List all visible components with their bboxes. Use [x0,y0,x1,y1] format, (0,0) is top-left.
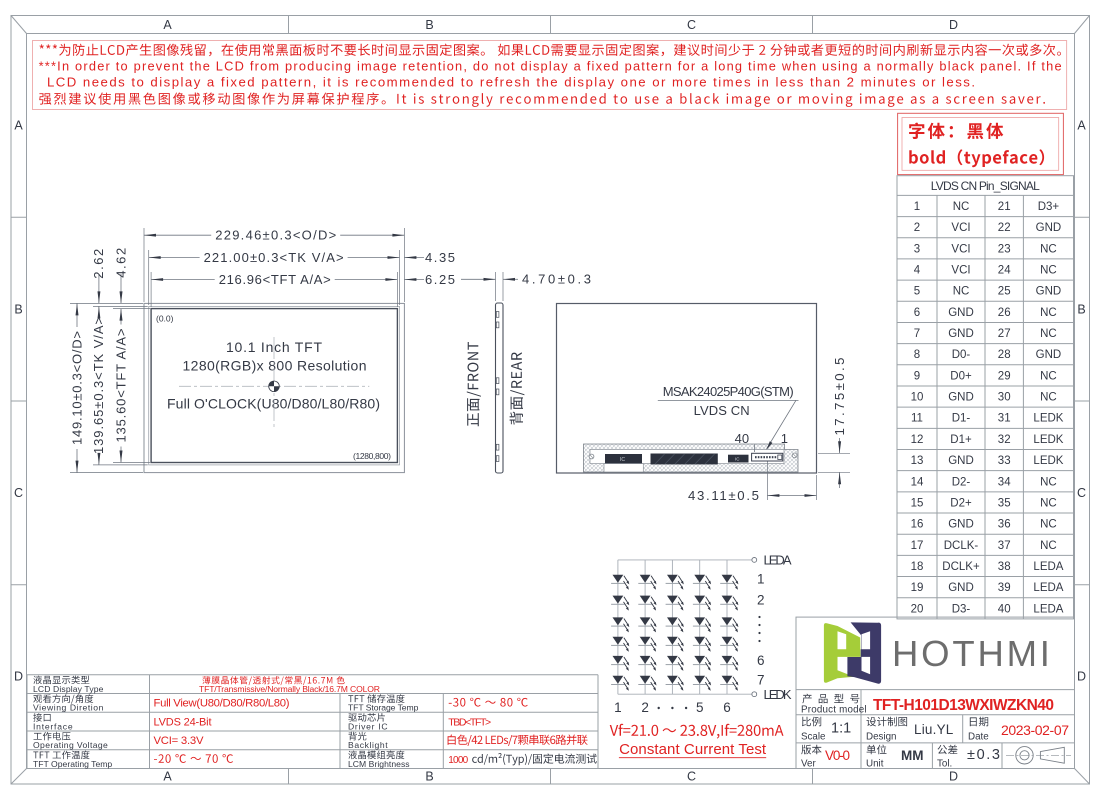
svg-text:NC: NC [1040,370,1057,382]
svg-text:GND: GND [948,582,974,594]
svg-text:A: A [163,770,172,784]
svg-text:Interface: Interface [33,721,73,731]
svg-text:GND: GND [948,328,974,340]
svg-text:1: 1 [914,201,920,213]
svg-text:D0+: D0+ [950,370,972,382]
svg-text:LEDK: LEDK [1033,413,1063,425]
svg-text:D2+: D2+ [950,497,972,509]
svg-text:Operating Voltage: Operating Voltage [33,740,108,750]
svg-text:1000: 1000 [448,755,468,766]
svg-text:A: A [1077,119,1086,133]
svg-text:B: B [425,770,433,784]
svg-text:D2-: D2- [952,476,971,488]
svg-text:D: D [14,670,23,684]
svg-text:22: 22 [998,222,1011,234]
svg-text:1: 1 [781,431,788,446]
svg-text:216.96<TFT A/A>: 216.96<TFT A/A> [219,272,331,287]
svg-text:40: 40 [998,603,1011,615]
svg-text:26: 26 [998,307,1011,319]
svg-text:VCI: VCI [951,243,970,255]
svg-text:LEDK: LEDK [1033,455,1063,467]
svg-text:C: C [14,486,23,500]
svg-text:23: 23 [998,243,1011,255]
svg-text:2023-02-07: 2023-02-07 [1001,722,1069,738]
svg-text:18: 18 [911,561,924,573]
svg-text:Driver IC: Driver IC [348,721,388,731]
svg-text:4.35: 4.35 [425,250,455,265]
svg-text:1280(RGB)x 800 Resolution: 1280(RGB)x 800 Resolution [183,357,367,373]
svg-text:LEDA: LEDA [764,553,792,568]
svg-text:VCI: VCI [951,265,970,277]
svg-text:139.65±0.3<TK V/A>: 139.65±0.3<TK V/A> [91,317,106,454]
svg-text:NC: NC [1040,265,1057,277]
svg-text:20: 20 [911,603,924,615]
svg-text:32: 32 [998,434,1011,446]
svg-text:IC: IC [735,457,740,462]
svg-text:40: 40 [735,431,749,446]
svg-text:MSAK24025P40G(STM): MSAK24025P40G(STM) [663,384,794,399]
svg-text:Scale: Scale [801,732,826,743]
svg-text:6: 6 [723,700,731,715]
svg-text:LEDA: LEDA [1033,582,1063,594]
svg-text:Design: Design [866,732,897,743]
svg-text:TFT/Transmissive/Normally Blac: TFT/Transmissive/Normally Black/16.7M CO… [199,684,380,694]
svg-text:25: 25 [998,286,1011,298]
svg-text:GND: GND [1036,222,1062,234]
svg-text:9: 9 [914,370,920,382]
svg-text:43.11±0.5: 43.11±0.5 [688,488,759,503]
svg-text:19: 19 [911,582,924,594]
svg-text:NC: NC [953,286,970,298]
svg-text:Full O'CLOCK(U80/D80/L80/R80): Full O'CLOCK(U80/D80/L80/R80) [167,395,380,411]
svg-text:12: 12 [911,434,924,446]
svg-text:NC: NC [1040,243,1057,255]
svg-text:7: 7 [914,328,920,340]
svg-text:6: 6 [914,307,920,319]
svg-text:Product model: Product model [801,705,867,716]
svg-text:Unit: Unit [866,759,884,770]
svg-text:IC: IC [620,457,625,463]
svg-text:***In order to prevent the LCD: ***In order to prevent the LCD from prod… [39,59,1062,74]
svg-text:VCI= 3.3V: VCI= 3.3V [154,735,204,747]
svg-text:2.62: 2.62 [91,249,106,279]
svg-text:TFT Operating Temp: TFT Operating Temp [33,759,112,769]
svg-text:TFT Storage Temp: TFT Storage Temp [348,703,419,713]
svg-text:VCI: VCI [951,222,970,234]
svg-text:229.46±0.3<O/D>: 229.46±0.3<O/D> [215,228,336,243]
svg-text:Liu.YL: Liu.YL [914,722,954,737]
svg-text:LVDS CN Pin_SIGNAL: LVDS CN Pin_SIGNAL [931,179,1040,193]
svg-text:1: 1 [614,700,622,715]
svg-text:36: 36 [998,519,1011,531]
svg-text:21: 21 [998,201,1011,213]
svg-text:16: 16 [911,519,924,531]
svg-text:NC: NC [953,201,970,213]
svg-text:±0.3: ±0.3 [967,747,1000,763]
svg-text:27: 27 [998,328,1011,340]
svg-text:NC: NC [1040,392,1057,404]
svg-text:Constant Current Test: Constant Current Test [619,741,767,758]
svg-text:D3+: D3+ [1038,201,1060,213]
svg-text:24: 24 [998,265,1011,277]
svg-text:5: 5 [696,700,704,715]
svg-text:135.60<TFT A/A>: 135.60<TFT A/A> [113,329,128,443]
svg-text:15: 15 [911,497,924,509]
svg-text:LVDS 24-Bit: LVDS 24-Bit [154,716,212,728]
svg-text:D3-: D3- [952,603,971,615]
svg-text:TBD<TFT>: TBD<TFT> [448,716,491,728]
svg-text:C: C [687,18,696,32]
svg-text:B: B [1077,303,1085,317]
svg-text:TFT-H101D13WXIWZKN40: TFT-H101D13WXIWZKN40 [873,697,1054,714]
svg-text:LCD Display Type: LCD Display Type [33,684,104,694]
svg-text:4.70±0.3: 4.70±0.3 [522,272,591,287]
svg-text:3: 3 [914,243,920,255]
svg-text:LCD needs to display a fixed p: LCD needs to display a fixed pattern, it… [47,75,975,90]
svg-text:Date: Date [968,732,989,743]
svg-text:33: 33 [998,455,1011,467]
svg-text:GND: GND [948,392,974,404]
svg-text:GND: GND [948,455,974,467]
svg-text:NC: NC [1040,476,1057,488]
svg-text:LEDA: LEDA [1033,561,1063,573]
svg-text:B: B [14,303,22,317]
svg-text:6: 6 [757,653,765,668]
svg-text:D1-: D1- [952,413,971,425]
svg-text:B: B [425,18,433,32]
svg-text:NC: NC [1040,497,1057,509]
svg-text:4.62: 4.62 [113,248,128,278]
svg-text:(0.0): (0.0) [156,314,174,324]
svg-text:37: 37 [998,540,1011,552]
svg-text:29: 29 [998,370,1011,382]
svg-text:LVDS CN: LVDS CN [694,403,750,418]
svg-text:1: 1 [757,572,765,587]
svg-text:GND: GND [948,519,974,531]
svg-text:39: 39 [998,582,1011,594]
svg-text:35: 35 [998,497,1011,509]
svg-text:LEDK: LEDK [764,687,792,702]
svg-text:C: C [687,770,696,784]
svg-text:HOTHMI: HOTHMI [892,633,1053,674]
svg-text:31: 31 [998,413,1011,425]
svg-text:D: D [949,18,958,32]
svg-text:Ver: Ver [801,759,816,770]
svg-text:NC: NC [1040,307,1057,319]
svg-text:D: D [949,770,958,784]
svg-text:Viewing Diretion: Viewing Diretion [33,703,104,713]
svg-text:2: 2 [914,222,920,234]
svg-text:D0-: D0- [952,349,971,361]
svg-text:GND: GND [1036,349,1062,361]
svg-text:30: 30 [998,392,1011,404]
svg-text:GND: GND [948,307,974,319]
svg-text:2: 2 [641,700,649,715]
svg-text:C: C [1077,486,1086,500]
svg-text:28: 28 [998,349,1011,361]
svg-text:LEDK: LEDK [1033,434,1063,446]
svg-text:6.25: 6.25 [425,272,455,287]
svg-text:(1280,800): (1280,800) [353,451,391,461]
svg-text:NC: NC [1040,328,1057,340]
svg-text:8: 8 [914,349,920,361]
svg-text:1:1: 1:1 [831,721,851,737]
svg-text:17.75±0.5: 17.75±0.5 [832,358,847,436]
svg-text:34: 34 [998,476,1011,488]
svg-text:7: 7 [757,673,765,688]
svg-text:A: A [163,18,172,32]
svg-text:Backlight: Backlight [348,740,388,750]
svg-text:D: D [1077,670,1086,684]
svg-text:MM: MM [901,748,924,763]
svg-text:D1+: D1+ [950,434,972,446]
svg-text:A: A [14,119,23,133]
svg-text:NC: NC [1040,540,1057,552]
svg-text:GND: GND [1036,286,1062,298]
svg-text:LEDA: LEDA [1033,603,1063,615]
svg-text:LCM Brightness: LCM Brightness [348,759,410,769]
svg-text:221.00±0.3<TK V/A>: 221.00±0.3<TK V/A> [204,250,344,265]
svg-text:4: 4 [914,265,921,277]
svg-text:14: 14 [911,476,924,488]
svg-text:Full View(U80/D80/R80/L80): Full View(U80/D80/R80/L80) [154,698,290,710]
svg-text:DCLK-: DCLK- [944,540,979,552]
svg-text:DCLK+: DCLK+ [942,561,980,573]
svg-text:13: 13 [911,455,924,467]
svg-text:38: 38 [998,561,1011,573]
svg-text:NC: NC [1040,519,1057,531]
svg-text:10: 10 [911,392,924,404]
svg-text:149.10±0.3<O/D>: 149.10±0.3<O/D> [69,331,84,445]
svg-text:5: 5 [914,286,920,298]
svg-text:V0-0: V0-0 [825,748,850,763]
svg-text:17: 17 [911,540,924,552]
svg-text:Tol.: Tol. [937,759,952,770]
svg-text:2: 2 [757,593,765,608]
svg-text:11: 11 [911,413,923,425]
